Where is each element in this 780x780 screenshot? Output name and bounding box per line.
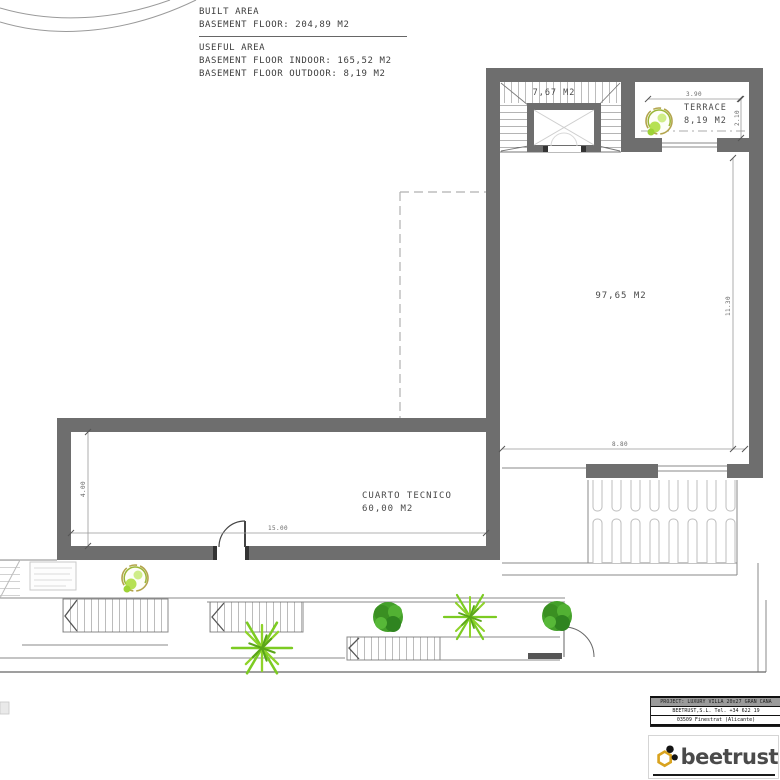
title-block: PROJECT: LUXURY VILLA 20x27 GRAN CANA BE… <box>650 696 780 727</box>
main-room-area-label: 97,65 M2 <box>595 291 646 301</box>
garden-gate-door <box>528 627 594 659</box>
garden-bush-icon <box>373 602 403 632</box>
small-note-box <box>30 562 76 590</box>
address-row: 03509 Finestrat (Alicante) <box>651 716 780 726</box>
dim-room-height: 11.30 <box>725 296 732 316</box>
wall-openings <box>502 143 727 471</box>
company-row: BEETRUST,S.L. Tel. +34 622 19 <box>651 707 780 716</box>
dim-room-width: 8.80 <box>612 441 628 448</box>
garden-bush-icon <box>542 601 572 631</box>
site-contour-lines <box>0 0 196 31</box>
plants <box>122 108 672 673</box>
dim-tech-width: 15.00 <box>268 525 288 532</box>
project-title-row: PROJECT: LUXURY VILLA 20x27 GRAN CANA <box>651 698 780 707</box>
logo-underline <box>653 774 775 776</box>
logo-wordmark: beetrust <box>681 745 778 769</box>
terrace-plant-icon <box>646 108 672 136</box>
edge-artifact <box>0 702 9 714</box>
door-jambs <box>213 546 249 560</box>
logo-box: beetrust <box>648 735 779 779</box>
courtyard-plant-icon <box>122 565 148 593</box>
tech-room-area-label: 60,00 M2 <box>362 504 413 514</box>
dim-terrace-depth: 2.10 <box>734 110 741 126</box>
floor-plan-drawing: 3.90 2.10 11.30 8.80 4.00 15.00 7,67 M2 … <box>0 0 780 780</box>
stairwell-area-label: 7,67 M2 <box>533 88 576 98</box>
beetrust-logo-icon <box>654 741 679 773</box>
floor-plan-sheet: BUILT AREA BASEMENT FLOOR: 204,89 M2 USE… <box>0 0 780 780</box>
tech-room-label: CUARTO TECNICO <box>362 491 452 501</box>
tech-room-door <box>219 521 245 547</box>
elevator-shaft <box>527 103 601 152</box>
projection-dashed-outline <box>400 192 486 418</box>
dim-terrace-width: 3.90 <box>686 91 702 98</box>
left-edge-steps <box>0 560 20 598</box>
terrace-label: TERRACE <box>684 103 727 113</box>
terrace-area-label: 8,19 M2 <box>684 116 727 126</box>
deck-louvers <box>588 480 737 563</box>
dim-tech-depth: 4.00 <box>80 481 87 497</box>
